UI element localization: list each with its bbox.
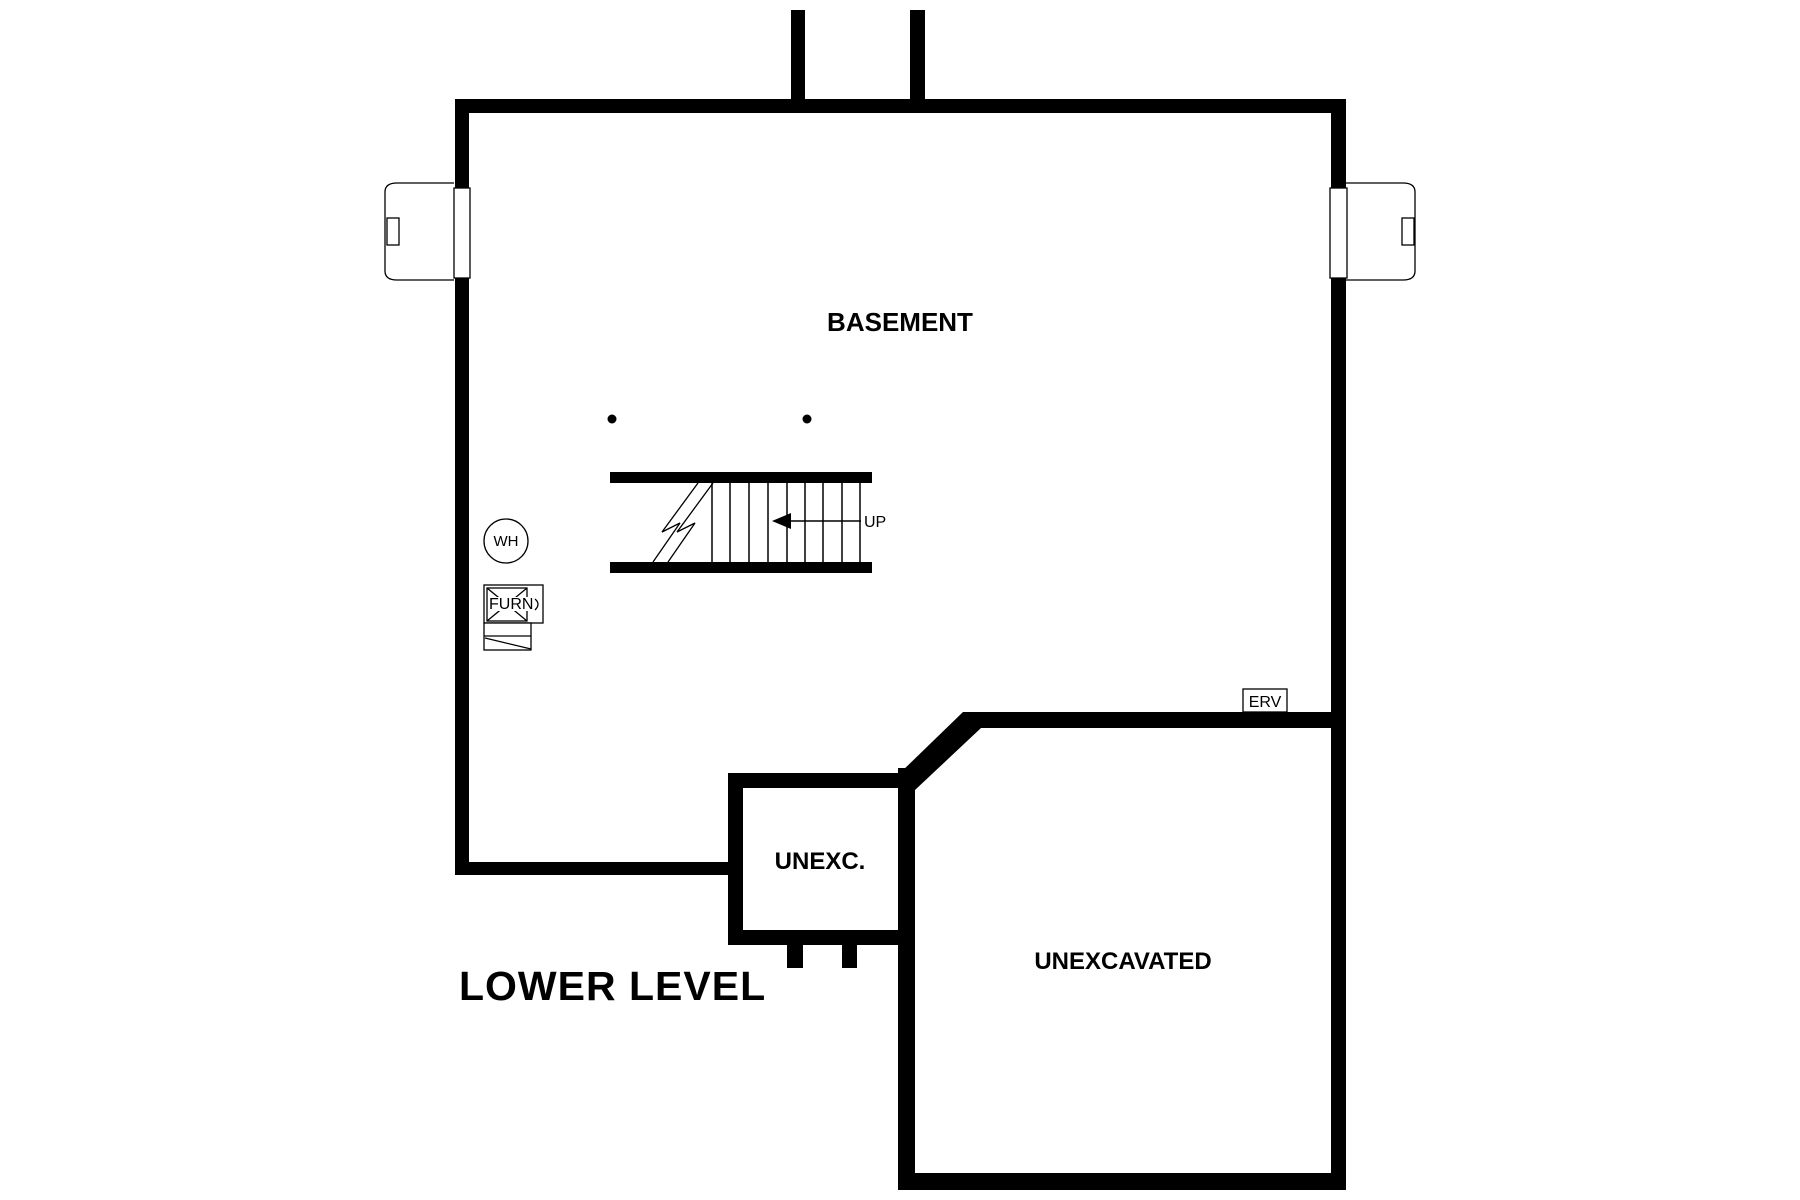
furnace-symbol: FURN: [484, 585, 543, 650]
left-window-casing: [454, 188, 470, 278]
left-window-notch: [387, 218, 399, 245]
furnace-label: FURN: [489, 596, 533, 613]
floor-plan-drawing: UP WH FURN ERV BASEMENT UNEXC. UNEXCAVAT…: [0, 0, 1800, 1200]
furnace-plenum: [484, 623, 531, 650]
exterior-walls: [455, 10, 1346, 1190]
erv-label: ERV: [1249, 694, 1282, 711]
unexcavated-room-label: UNEXCAVATED: [1034, 948, 1211, 975]
water-heater-label: WH: [494, 533, 519, 550]
break-line-edge: [668, 483, 713, 562]
wall-unexc-top: [728, 773, 913, 788]
basement-room-label: BASEMENT: [827, 307, 973, 337]
wall-stub-below-unexc-2: [842, 945, 857, 968]
erv-unit: ERV: [1243, 689, 1287, 712]
unexc-room-label: UNEXC.: [775, 848, 866, 875]
stair-rail-bottom: [610, 562, 872, 573]
wall-unexc-right-shared: [898, 768, 915, 1190]
wall-unexc-bottom: [728, 930, 913, 945]
stairs-up-label: UP: [864, 514, 886, 531]
right-window-casing: [1330, 188, 1347, 278]
support-columns: [608, 415, 812, 424]
support-column-dot: [803, 415, 812, 424]
up-arrow-head: [772, 513, 791, 529]
right-window-notch: [1402, 218, 1414, 245]
wall-top: [455, 99, 1345, 113]
wall-stub-left: [791, 10, 805, 100]
floor-plan-page: UP WH FURN ERV BASEMENT UNEXC. UNEXCAVAT…: [0, 0, 1800, 1200]
wall-unexcavated-bottom: [898, 1173, 1346, 1190]
stair-rail-top: [610, 472, 872, 483]
left-window: [385, 183, 470, 280]
stair-break-line: [653, 483, 713, 562]
up-arrow: UP: [772, 513, 886, 531]
staircase: UP: [610, 472, 886, 573]
wall-stub-below-unexc-1: [787, 945, 803, 968]
right-window: [1330, 183, 1415, 280]
chimney-stubs: [791, 10, 925, 100]
wall-bottom-basement: [455, 862, 743, 875]
page-title: LOWER LEVEL: [459, 963, 766, 1009]
wall-unexc-left: [728, 773, 743, 945]
water-heater-symbol: WH: [484, 519, 528, 563]
wall-unexcavated-top: [963, 712, 1331, 728]
support-column-dot: [608, 415, 617, 424]
wall-stub-right: [910, 10, 925, 100]
